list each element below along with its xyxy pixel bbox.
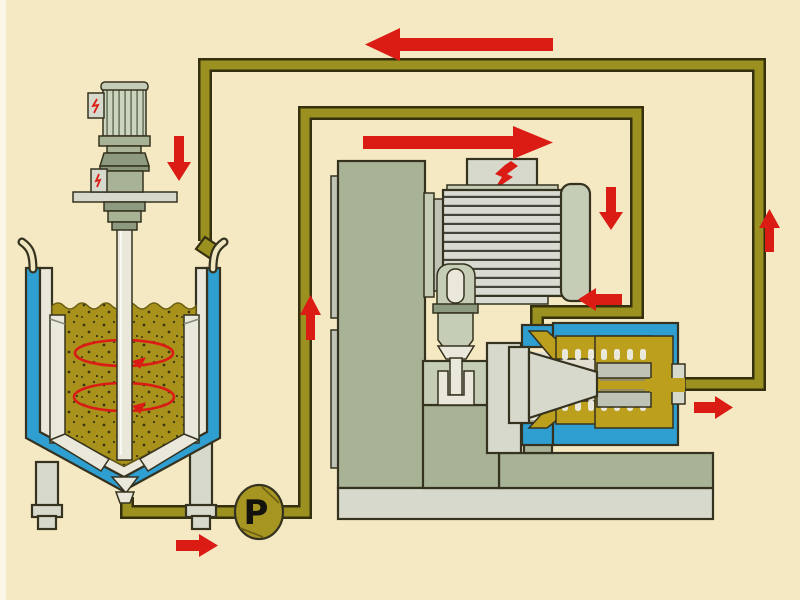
outlet-channel <box>650 378 685 392</box>
guide-tube-left <box>50 315 65 443</box>
stator-slot-lower <box>597 392 651 407</box>
diagram-canvas: P <box>0 0 800 600</box>
motor-band <box>99 136 150 146</box>
agitator-mounting-plate <box>73 192 177 202</box>
gearbox-body <box>106 171 143 192</box>
stand-column <box>338 161 425 488</box>
motor-front-plate <box>424 193 434 297</box>
motor-neck <box>107 146 141 153</box>
coupling-sight-capsule <box>447 269 464 303</box>
motor-end-cap <box>561 184 590 301</box>
spindle-stem <box>450 358 462 395</box>
coupling-flange <box>433 304 478 313</box>
stator-slot-upper <box>597 363 651 378</box>
tank-leg-right-foot <box>192 516 210 529</box>
coupling-body <box>108 211 141 222</box>
circulation-pump: P <box>235 485 283 539</box>
mill-inlet-flange <box>509 347 529 423</box>
tank-leg-left <box>36 462 58 508</box>
motor-ribbed-body <box>103 90 146 136</box>
coupling-lower-block <box>438 313 473 348</box>
coupling-flange-1 <box>104 202 145 211</box>
process-diagram: P <box>0 0 800 600</box>
coupling-flange-2 <box>112 222 137 230</box>
mill-chamber <box>509 323 685 445</box>
pump-label: P <box>244 493 269 533</box>
photo-border-left <box>0 0 6 600</box>
guide-tube-right <box>184 315 199 443</box>
shaft-coupling <box>433 264 478 405</box>
funnel-base <box>116 492 134 503</box>
machine-base <box>338 488 713 519</box>
gearbox-bell <box>100 153 149 166</box>
machine-base-riser <box>499 453 713 488</box>
agitator-shaft <box>117 202 132 460</box>
tank-leg-left-foot <box>38 516 56 529</box>
